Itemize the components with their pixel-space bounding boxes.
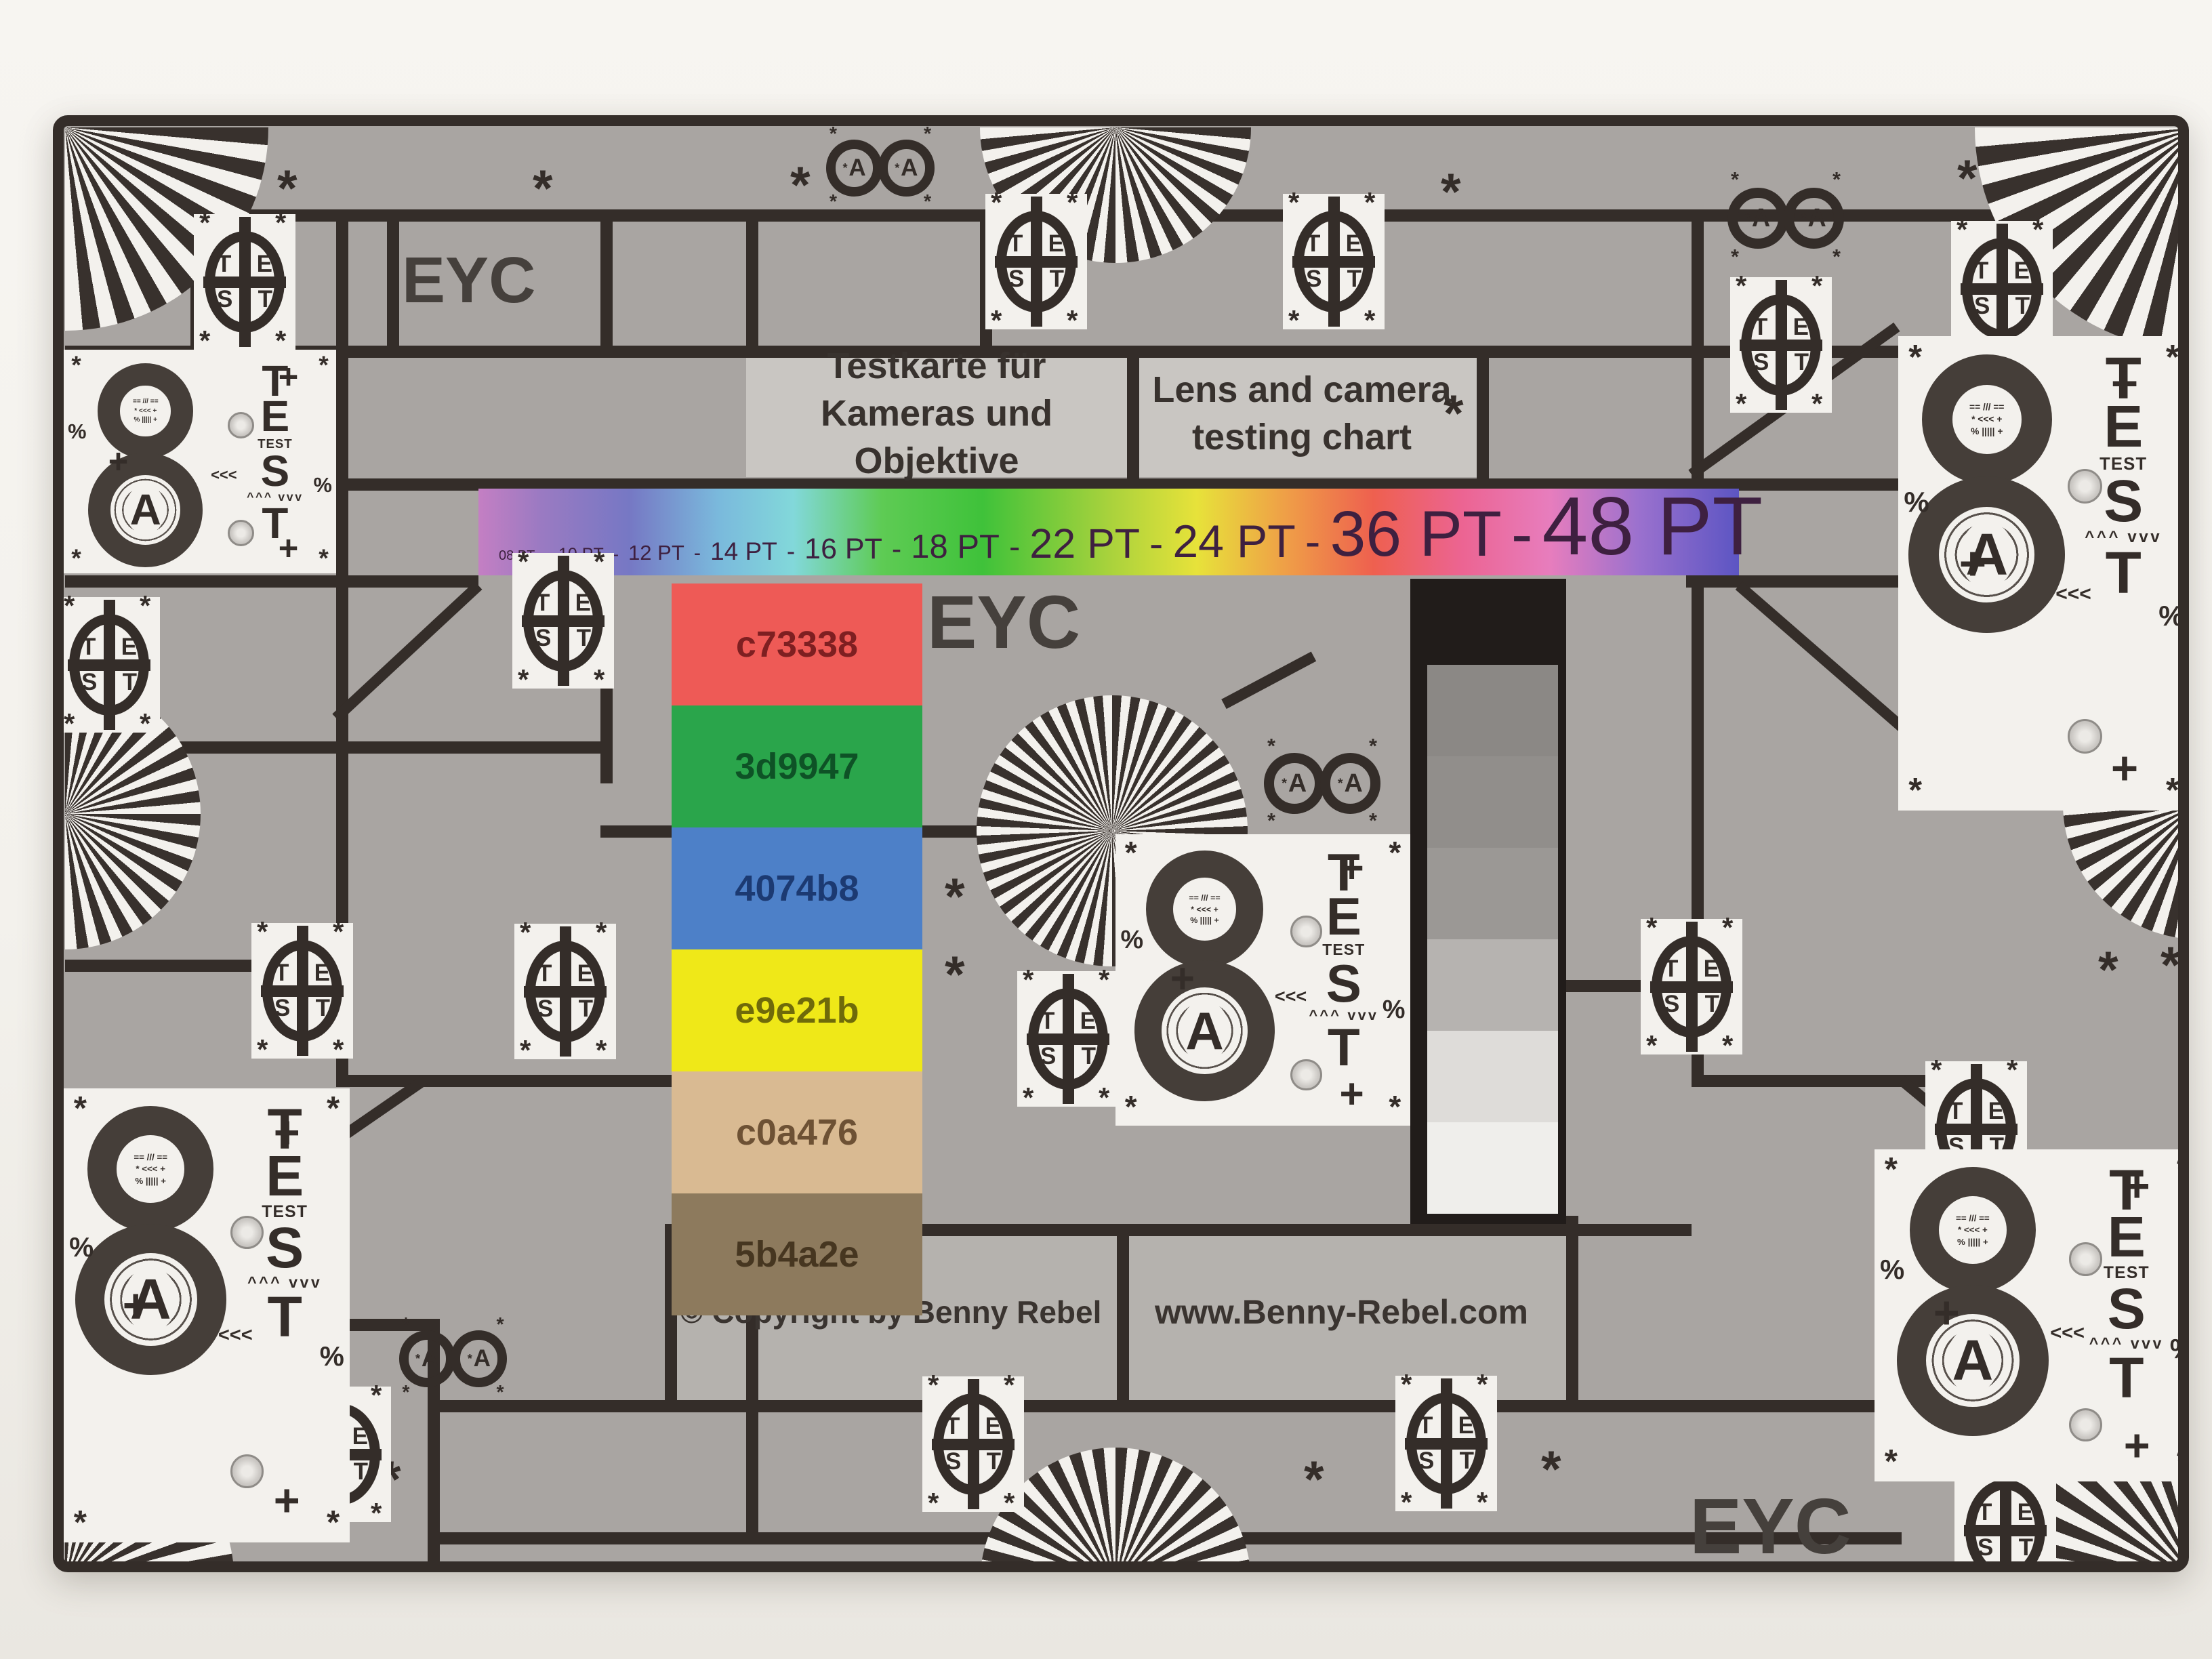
asterisk-mark: *: [74, 1092, 87, 1125]
marker-letter: T: [987, 1448, 1001, 1475]
plus-mark: +: [1339, 852, 1364, 886]
marker-letter: S: [1008, 266, 1024, 293]
eight-test-block: * * * * % % + + + <<< == /// == * <<< + …: [1115, 834, 1410, 1126]
figure-eight-a-badge: * * * * *A *A: [394, 1325, 512, 1393]
micro-line: % ||||| +: [1969, 426, 2004, 438]
marker-letter: T: [1347, 266, 1361, 293]
asterisk-mark: *: [1541, 1444, 1561, 1496]
asterisk-mark: *: [1304, 1454, 1324, 1506]
micro-pattern: == /// == * <<< + % ||||| +: [1189, 893, 1220, 925]
badge-ring: *A: [878, 140, 935, 196]
marker-letter: T: [1306, 230, 1320, 258]
specular-dot: [2068, 719, 2102, 754]
marker-cross: [68, 659, 150, 671]
marker-letter: S: [945, 1448, 961, 1475]
marker-letter: E: [1346, 230, 1361, 258]
asterisk-mark: *: [74, 1506, 87, 1539]
test-letter: S: [2104, 477, 2143, 525]
marker-letter: T: [123, 669, 137, 696]
color-patch-brown: 5b4a2e: [672, 1193, 922, 1315]
micro-line: % ||||| +: [133, 415, 159, 424]
marker-letter: S: [1664, 991, 1679, 1018]
badge-letter: A: [1288, 769, 1307, 798]
marker-cross: [1027, 1033, 1109, 1045]
asterisk-mark: *: [1885, 1445, 1898, 1478]
marker-letter: T: [1418, 1412, 1433, 1439]
micro-line: * <<< +: [133, 407, 159, 415]
plus-mark: +: [1933, 1296, 1960, 1332]
marker-letter: S: [1306, 266, 1322, 293]
plus-mark: +: [274, 1483, 300, 1519]
asterisk-mark: *: [1957, 153, 1978, 205]
eyc-label-top-left: EYC: [402, 248, 535, 313]
marker-letter: E: [2014, 258, 2030, 285]
separator: -: [694, 544, 701, 562]
color-patch-label: 4074b8: [735, 867, 859, 909]
specular-dot: [2069, 1242, 2103, 1276]
marker-letter: E: [575, 590, 591, 617]
micro-line: * <<< +: [134, 1163, 167, 1174]
separator: -: [1149, 527, 1163, 562]
color-patch-yellow: e9e21b: [672, 949, 922, 1071]
font-size-label-16pt: 16 PT: [804, 537, 882, 562]
marker-letter: T: [81, 634, 96, 661]
separator: -: [1305, 523, 1321, 562]
micro-pattern: == /// == * <<< + % ||||| +: [1969, 401, 2004, 438]
letter-a: A: [125, 485, 165, 535]
test-letter: T: [267, 1294, 302, 1340]
specular-dot: [230, 1454, 264, 1488]
micro-line: == /// ==: [134, 1151, 167, 1163]
percent-mark: %: [2170, 1335, 2189, 1363]
color-patch-label: c0a476: [736, 1111, 858, 1153]
micro-line: * <<< +: [1189, 904, 1220, 915]
test-circle-marker: * * * * T E S T: [194, 214, 295, 350]
color-patch-label: e9e21b: [735, 989, 859, 1031]
micro-line: * <<< +: [1956, 1224, 1990, 1235]
font-size-label-36pt: 36 PT: [1330, 507, 1501, 562]
eight-test-block: * * * * % % + + + <<< == /// == * <<< + …: [1898, 336, 2189, 811]
marker-letter: S: [81, 669, 97, 696]
percent-mark: %: [313, 475, 331, 496]
test-letter: T: [1328, 1025, 1360, 1069]
asterisk-mark: *: [1125, 1092, 1137, 1123]
marker-letter: E: [1793, 314, 1809, 341]
marker-letter: T: [217, 251, 231, 278]
marker-letter: E: [1458, 1412, 1474, 1439]
chevrons-mark: <<<: [2050, 1322, 2085, 1345]
website-text: www.Benny-Rebel.com: [1117, 1224, 1566, 1400]
eight-upper-loop: == /// == * <<< + % ||||| +: [87, 1106, 213, 1232]
marker-letter: S: [535, 625, 551, 652]
title-english-line1: Lens and camera: [1152, 366, 1451, 413]
asterisk-mark: *: [1443, 388, 1464, 440]
eight-lower-loop: A: [1897, 1285, 2048, 1436]
test-circle-marker: * * * * T E S T: [922, 1376, 1024, 1512]
marker-letter: T: [1008, 230, 1023, 258]
chevrons-mark: <<<: [211, 466, 237, 484]
marker-letter: E: [314, 960, 330, 987]
percent-mark: %: [1121, 928, 1144, 954]
marker-letter: T: [1664, 956, 1678, 983]
badge-letter: A: [422, 1345, 438, 1372]
gray-step-6: [1427, 1122, 1558, 1214]
grid-line: [746, 209, 758, 346]
marker-letter: T: [1050, 266, 1064, 293]
title-german-line1: Testkarte für: [827, 342, 1046, 390]
test-circle-marker: * * * * T E S T: [1641, 919, 1742, 1054]
eight-lower-loop: A: [88, 453, 203, 567]
font-size-bar: 08 PT - 10 PT - 12 PT - 14 PT - 16 PT - …: [478, 489, 1739, 575]
badge-asterisks: * *: [829, 125, 931, 144]
micro-line: % ||||| +: [1189, 915, 1220, 926]
test-circle-marker: * * * * T E S T: [514, 924, 616, 1059]
figure-eight-a-badge: * * * * *A *A: [1261, 746, 1383, 821]
eyc-label-bottom-right: EYC: [1689, 1487, 1851, 1565]
font-size-label-48pt: 48 PT: [1542, 491, 1763, 562]
marker-letter: S: [1753, 349, 1769, 376]
figure-eight-a-badge: * * * * *A *A: [823, 134, 938, 202]
micro-pattern: == /// == * <<< + % ||||| +: [133, 397, 159, 424]
marker-letter: T: [2015, 293, 2030, 320]
marker-letter: T: [1948, 1098, 1963, 1125]
marker-letter: T: [577, 625, 591, 652]
percent-mark: %: [69, 1233, 94, 1261]
test-letter: S: [266, 1225, 304, 1271]
marker-cross: [932, 1439, 1015, 1450]
percent-mark: %: [1880, 1256, 1904, 1284]
badge-asterisks: * *: [1267, 736, 1377, 757]
title-english-line2: testing chart: [1192, 413, 1412, 461]
plus-mark: +: [2124, 1169, 2150, 1205]
micro-line: % ||||| +: [1956, 1236, 1990, 1248]
marker-letter: T: [274, 960, 289, 987]
plus-mark: +: [1339, 1078, 1364, 1111]
marker-cross: [1740, 340, 1822, 351]
micro-line: == /// ==: [1969, 401, 2004, 413]
color-patch-label: 3d9947: [735, 745, 859, 787]
marker-cross: [1964, 1525, 2047, 1536]
test-letter: E: [1326, 895, 1361, 938]
marker-letter: S: [1418, 1448, 1434, 1475]
separator: -: [892, 537, 901, 562]
figure-eight: == /// == * <<< + % ||||| + A: [1885, 1167, 2062, 1473]
marker-letter: E: [1080, 1008, 1096, 1035]
asterisk-mark: *: [2166, 773, 2179, 807]
asterisk-mark: *: [319, 546, 329, 571]
badge-mini-asterisk: *: [1338, 776, 1343, 792]
asterisk-mark: *: [1389, 838, 1401, 869]
test-letter: E: [266, 1153, 304, 1200]
specular-dot: [1290, 916, 1322, 947]
asterisk-mark: *: [533, 163, 553, 215]
asterisk-mark: *: [1441, 167, 1461, 218]
marker-letter: T: [354, 1458, 368, 1486]
plus-mark: +: [2111, 365, 2138, 402]
marker-letter: T: [535, 590, 550, 617]
chevrons-mark: <<<: [1275, 986, 1307, 1007]
asterisk-mark: *: [1908, 773, 1922, 807]
eight-test-block: * * * * % % + + + <<< == /// == * <<< + …: [64, 350, 336, 573]
eight-lower-loop: A: [75, 1224, 226, 1375]
micro-pattern: == /// == * <<< + % ||||| +: [134, 1151, 167, 1187]
badge-ring: *A: [826, 140, 882, 196]
figure-eight: == /// == * <<< + % ||||| + A: [71, 363, 220, 567]
percent-mark: %: [1904, 488, 1929, 516]
marker-letter: T: [1974, 258, 1988, 285]
font-size-label-24pt: 24 PT: [1172, 523, 1295, 562]
asterisk-mark: *: [2098, 945, 2118, 996]
marker-letter: T: [945, 1413, 960, 1440]
test-circle-marker: * * * * T E S T: [251, 923, 353, 1059]
badge-letter: A: [848, 155, 865, 182]
chevrons-mark: <<<: [218, 1324, 253, 1347]
badge-mini-asterisk: *: [415, 1352, 420, 1366]
marker-letter: T: [1705, 991, 1719, 1018]
test-circle-marker: * * * * T E S T: [1017, 971, 1119, 1107]
marker-letter: T: [258, 286, 272, 313]
plus-mark: +: [1170, 962, 1195, 996]
test-letter: S: [261, 453, 290, 489]
marker-cross: [203, 276, 286, 288]
grid-line: [65, 575, 478, 588]
title-english: Lens and camera testing chart: [1127, 350, 1477, 477]
separator: -: [1009, 533, 1020, 562]
badge-letter: A: [474, 1345, 491, 1372]
font-size-label-22pt: 22 PT: [1029, 527, 1140, 562]
badge-mini-asterisk: *: [468, 1352, 472, 1366]
title-german-line2: Kameras und Objektive: [746, 390, 1127, 485]
diagonal-line: [332, 581, 482, 722]
badge-ring: *A: [1784, 188, 1845, 249]
marker-letter: S: [1040, 1043, 1056, 1070]
eight-test-block: * * * * % % + + + <<< == /// == * <<< + …: [1875, 1149, 2189, 1481]
plus-mark: +: [2111, 750, 2138, 787]
badge-asterisks: * *: [829, 192, 931, 212]
test-circle-marker: * * * * T E S T: [985, 194, 1087, 329]
eight-test-block: * * * * % % + + + <<< == /// == * <<< + …: [64, 1088, 350, 1542]
marker-letter: E: [985, 1413, 1001, 1440]
micro-line: == /// ==: [133, 397, 159, 406]
font-size-label-14pt: 14 PT: [710, 541, 777, 562]
marker-cross: [524, 986, 607, 998]
color-patch-red: c73338: [672, 583, 922, 705]
eyc-label-center: EYC: [927, 586, 1080, 660]
marker-cross: [995, 256, 1078, 268]
test-letter: E: [261, 398, 290, 434]
specular-dot: [2069, 1408, 2103, 1442]
plus-mark: +: [279, 363, 299, 390]
badge-ring: *A: [1727, 188, 1788, 249]
diagonal-line: [1221, 652, 1316, 710]
asterisk-mark: *: [319, 352, 329, 377]
badge-asterisks: * *: [1267, 811, 1377, 832]
figure-eight: == /// == * <<< + % ||||| + A: [1125, 851, 1285, 1118]
badge-letter: A: [1344, 769, 1362, 798]
plus-mark: +: [1959, 545, 1986, 582]
test-circle-marker: * * * * T E S T: [1395, 1376, 1497, 1511]
marker-letter: T: [316, 995, 330, 1022]
photo-of-test-chart: 08 PT - 10 PT - 12 PT - 14 PT - 16 PT - …: [0, 0, 2212, 1659]
marker-letter: T: [1460, 1448, 1474, 1475]
marker-letter: S: [537, 996, 553, 1023]
color-patch-blue: 4074b8: [672, 827, 922, 949]
marker-letter: E: [257, 251, 272, 278]
badge-ring: *A: [1264, 753, 1325, 814]
marker-letter: E: [577, 960, 593, 987]
marker-letter: S: [217, 286, 232, 313]
asterisk-mark: *: [1389, 1092, 1401, 1123]
micro-line: == /// ==: [1189, 893, 1220, 903]
separator: -: [1511, 507, 1533, 562]
test-letter: E: [2104, 403, 2143, 451]
marker-letter: E: [352, 1423, 368, 1450]
percent-mark: %: [320, 1343, 344, 1370]
asterisk-mark: *: [327, 1506, 340, 1539]
badge-letter: A: [1752, 204, 1770, 233]
gray-step-5: [1427, 1031, 1558, 1122]
plus-mark: +: [108, 448, 129, 475]
badge-asterisks: * *: [1731, 169, 1841, 190]
plus-mark: +: [123, 1288, 149, 1324]
plus-mark: +: [2124, 1429, 2150, 1465]
test-circle-marker: * * * * T E S T: [512, 553, 614, 689]
test-letter: T: [2106, 549, 2142, 597]
plus-mark: +: [274, 1115, 300, 1151]
test-circle-marker: * * * * T E S T: [1730, 277, 1832, 413]
marker-cross: [1292, 256, 1375, 268]
asterisk-mark: *: [2166, 340, 2179, 374]
plus-mark: +: [279, 535, 299, 562]
font-size-label-18pt: 18 PT: [911, 533, 1000, 562]
test-letter: T: [2109, 1355, 2144, 1401]
badge-mini-asterisk: *: [895, 161, 899, 176]
marker-cross: [1405, 1438, 1488, 1450]
badge-ring: *A: [451, 1330, 507, 1387]
marker-letter: T: [1040, 1008, 1054, 1035]
micro-line: == /// ==: [1956, 1212, 1990, 1224]
asterisk-mark: *: [945, 949, 965, 1001]
marker-cross: [1935, 1124, 2018, 1135]
chevrons-mark: <<<: [2055, 583, 2091, 606]
badge-asterisks: * *: [1731, 247, 1841, 268]
gray-step-4: [1427, 939, 1558, 1031]
marker-letter: E: [2018, 1499, 2033, 1526]
marker-letter: S: [1978, 1534, 1993, 1561]
figure-eight: == /// == * <<< + % ||||| + A: [1908, 354, 2066, 802]
percent-mark: %: [1382, 998, 1406, 1023]
badge-ring: *A: [399, 1330, 455, 1387]
asterisk-mark: *: [1908, 340, 1922, 374]
badge-letter: A: [901, 155, 918, 182]
marker-cross: [522, 615, 605, 627]
eight-lower-loop: A: [1134, 960, 1275, 1101]
marker-letter: E: [121, 634, 137, 661]
marker-letter: S: [1974, 293, 1990, 320]
badge-mini-asterisk: *: [1745, 211, 1750, 226]
badge-letter: A: [1807, 204, 1826, 233]
badge-asterisks: * *: [402, 1315, 504, 1335]
eight-upper-loop: == /// == * <<< + % ||||| +: [1910, 1167, 2036, 1293]
marker-letter: E: [1704, 956, 1719, 983]
asterisk-mark: *: [2177, 1153, 2189, 1186]
font-size-label-12pt: 12 PT: [628, 544, 684, 562]
figure-eight: == /// == * <<< + % ||||| + A: [74, 1106, 228, 1534]
gray-step-3: [1427, 848, 1558, 939]
marker-cross: [1961, 283, 2043, 295]
marker-letter: T: [579, 996, 593, 1023]
marker-letter: T: [1795, 349, 1809, 376]
color-patch-label: c73338: [736, 623, 858, 665]
asterisk-mark: *: [1885, 1153, 1898, 1186]
micro-line: * <<< +: [1969, 413, 2004, 426]
badge-mini-asterisk: *: [1282, 776, 1287, 792]
marker-cross: [1650, 981, 1733, 993]
color-patch-tan: c0a476: [672, 1071, 922, 1193]
asterisk-mark: *: [71, 546, 81, 571]
specular-dot: [230, 1216, 264, 1250]
asterisk-mark: *: [71, 352, 81, 377]
marker-cross: [261, 985, 344, 997]
test-circle-marker: * * * * T E S T: [58, 597, 160, 733]
eight-lower-loop: A: [1908, 476, 2065, 633]
gray-step-1: [1427, 665, 1558, 756]
title-german: Testkarte für Kameras und Objektive: [746, 350, 1127, 477]
badge-mini-asterisk: *: [1801, 211, 1807, 226]
marker-letter: E: [1988, 1098, 2004, 1125]
color-patch-green: 3d9947: [672, 705, 922, 827]
letter-a: A: [1180, 1000, 1229, 1062]
test-letter: S: [2108, 1286, 2146, 1332]
test-letter: E: [2108, 1214, 2146, 1261]
badge-mini-asterisk: *: [843, 161, 848, 176]
marker-letter: T: [1753, 314, 1767, 341]
marker-letter: T: [2019, 1534, 2033, 1561]
marker-letter: T: [1082, 1043, 1096, 1070]
specular-dot: [2068, 469, 2102, 504]
asterisk-mark: *: [2177, 1445, 2189, 1478]
test-letter: S: [1326, 962, 1361, 1005]
lens-test-chart: 08 PT - 10 PT - 12 PT - 14 PT - 16 PT - …: [53, 115, 2189, 1572]
marker-letter: S: [274, 995, 290, 1022]
asterisk-mark: *: [945, 872, 965, 923]
micro-line: % ||||| +: [134, 1175, 167, 1187]
eight-upper-loop: == /// == * <<< + % ||||| +: [1922, 354, 2052, 485]
marker-letter: T: [1978, 1499, 1992, 1526]
specular-dot: [1290, 1059, 1322, 1091]
grid-line: [387, 209, 399, 346]
asterisk-mark: *: [2160, 940, 2181, 991]
figure-eight-a-badge: * * * * *A *A: [1725, 180, 1846, 257]
color-patch-label: 5b4a2e: [735, 1233, 859, 1275]
separator: -: [787, 541, 795, 562]
marker-letter: E: [1048, 230, 1064, 258]
micro-pattern: == /// == * <<< + % ||||| +: [1956, 1212, 1990, 1248]
grid-line: [1692, 209, 1704, 478]
eight-upper-loop: == /// == * <<< + % ||||| +: [1146, 851, 1263, 968]
marker-letter: T: [537, 960, 552, 987]
gray-step-2: [1427, 756, 1558, 848]
percent-mark: %: [2158, 602, 2184, 630]
asterisk-mark: *: [1125, 838, 1137, 869]
badge-ring: *A: [1320, 753, 1381, 814]
test-circle-marker: * * * * T E S T: [1283, 194, 1385, 329]
grid-line: [600, 209, 613, 346]
badge-asterisks: * *: [402, 1383, 504, 1403]
grid-line: [1477, 346, 1489, 478]
asterisk-mark: *: [790, 160, 811, 211]
asterisk-mark: *: [327, 1092, 340, 1125]
